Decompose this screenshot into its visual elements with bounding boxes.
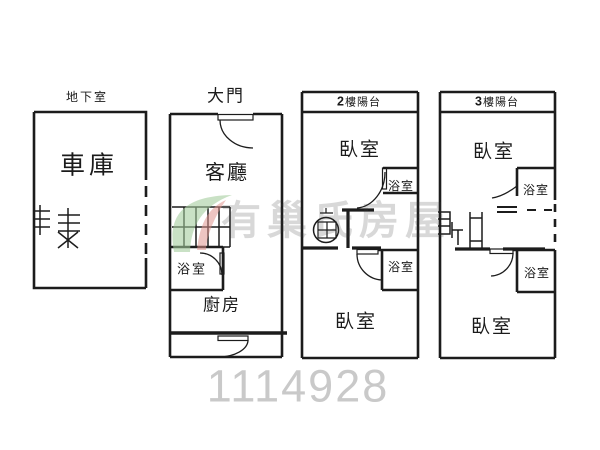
bathroom3b-door-arc bbox=[491, 253, 513, 276]
kitchen-label: 廚房 bbox=[203, 297, 241, 314]
balcony-3f-label: 3樓陽台 bbox=[475, 96, 519, 109]
bathroom2b-door-arc bbox=[357, 254, 383, 280]
balcony-3f-number: 3 bbox=[475, 95, 483, 109]
basement-walls bbox=[34, 112, 146, 288]
bathroom2b-door-leaf bbox=[357, 250, 378, 255]
bathroom-label-3f-front: 浴室 bbox=[523, 184, 549, 196]
balcony-2f-label: 2樓陽台 bbox=[337, 96, 381, 109]
bedroom-label-2f-front: 臥室 bbox=[339, 141, 381, 160]
bathroom-label-ground: 浴室 bbox=[177, 263, 207, 276]
balcony-3f-suffix: 樓陽台 bbox=[483, 97, 519, 109]
bedroom-label-2f-back: 臥室 bbox=[335, 313, 377, 332]
entrance-title: 大門 bbox=[207, 88, 245, 105]
garage-label: 車庫 bbox=[60, 154, 118, 179]
basement-unit bbox=[33, 112, 146, 288]
bathroom3a-door-arc bbox=[492, 186, 517, 198]
back-door-arc bbox=[218, 340, 248, 357]
brand-watermark-text: 有巢氏房屋 bbox=[221, 201, 451, 241]
entrance-door-leaf bbox=[218, 115, 253, 121]
basement-stair-icon bbox=[33, 205, 80, 248]
living-room-label: 客廳 bbox=[205, 163, 249, 183]
entrance-door-arc bbox=[220, 120, 253, 148]
bedroom-label-3f-back: 臥室 bbox=[471, 318, 513, 337]
bedroom-label-3f-front: 臥室 bbox=[473, 143, 515, 162]
bathroom-label-2f-back: 浴室 bbox=[388, 261, 414, 273]
basement-title: 地下室 bbox=[66, 91, 108, 103]
balcony-2f-suffix: 樓陽台 bbox=[345, 97, 381, 109]
bathroom-label-3f-back: 浴室 bbox=[524, 267, 550, 279]
floorplan-image: 地下室 車庫 大門 客廳 浴室 廚房 2樓陽台 臥室 浴室 浴室 臥室 3樓陽台… bbox=[0, 0, 600, 450]
bathroom-label-2f-front: 浴室 bbox=[388, 180, 414, 192]
balcony-2f-number: 2 bbox=[337, 95, 345, 109]
back-door-leaf bbox=[218, 336, 248, 341]
window-dash-line bbox=[497, 207, 552, 212]
listing-number: 1114928 bbox=[207, 364, 390, 409]
